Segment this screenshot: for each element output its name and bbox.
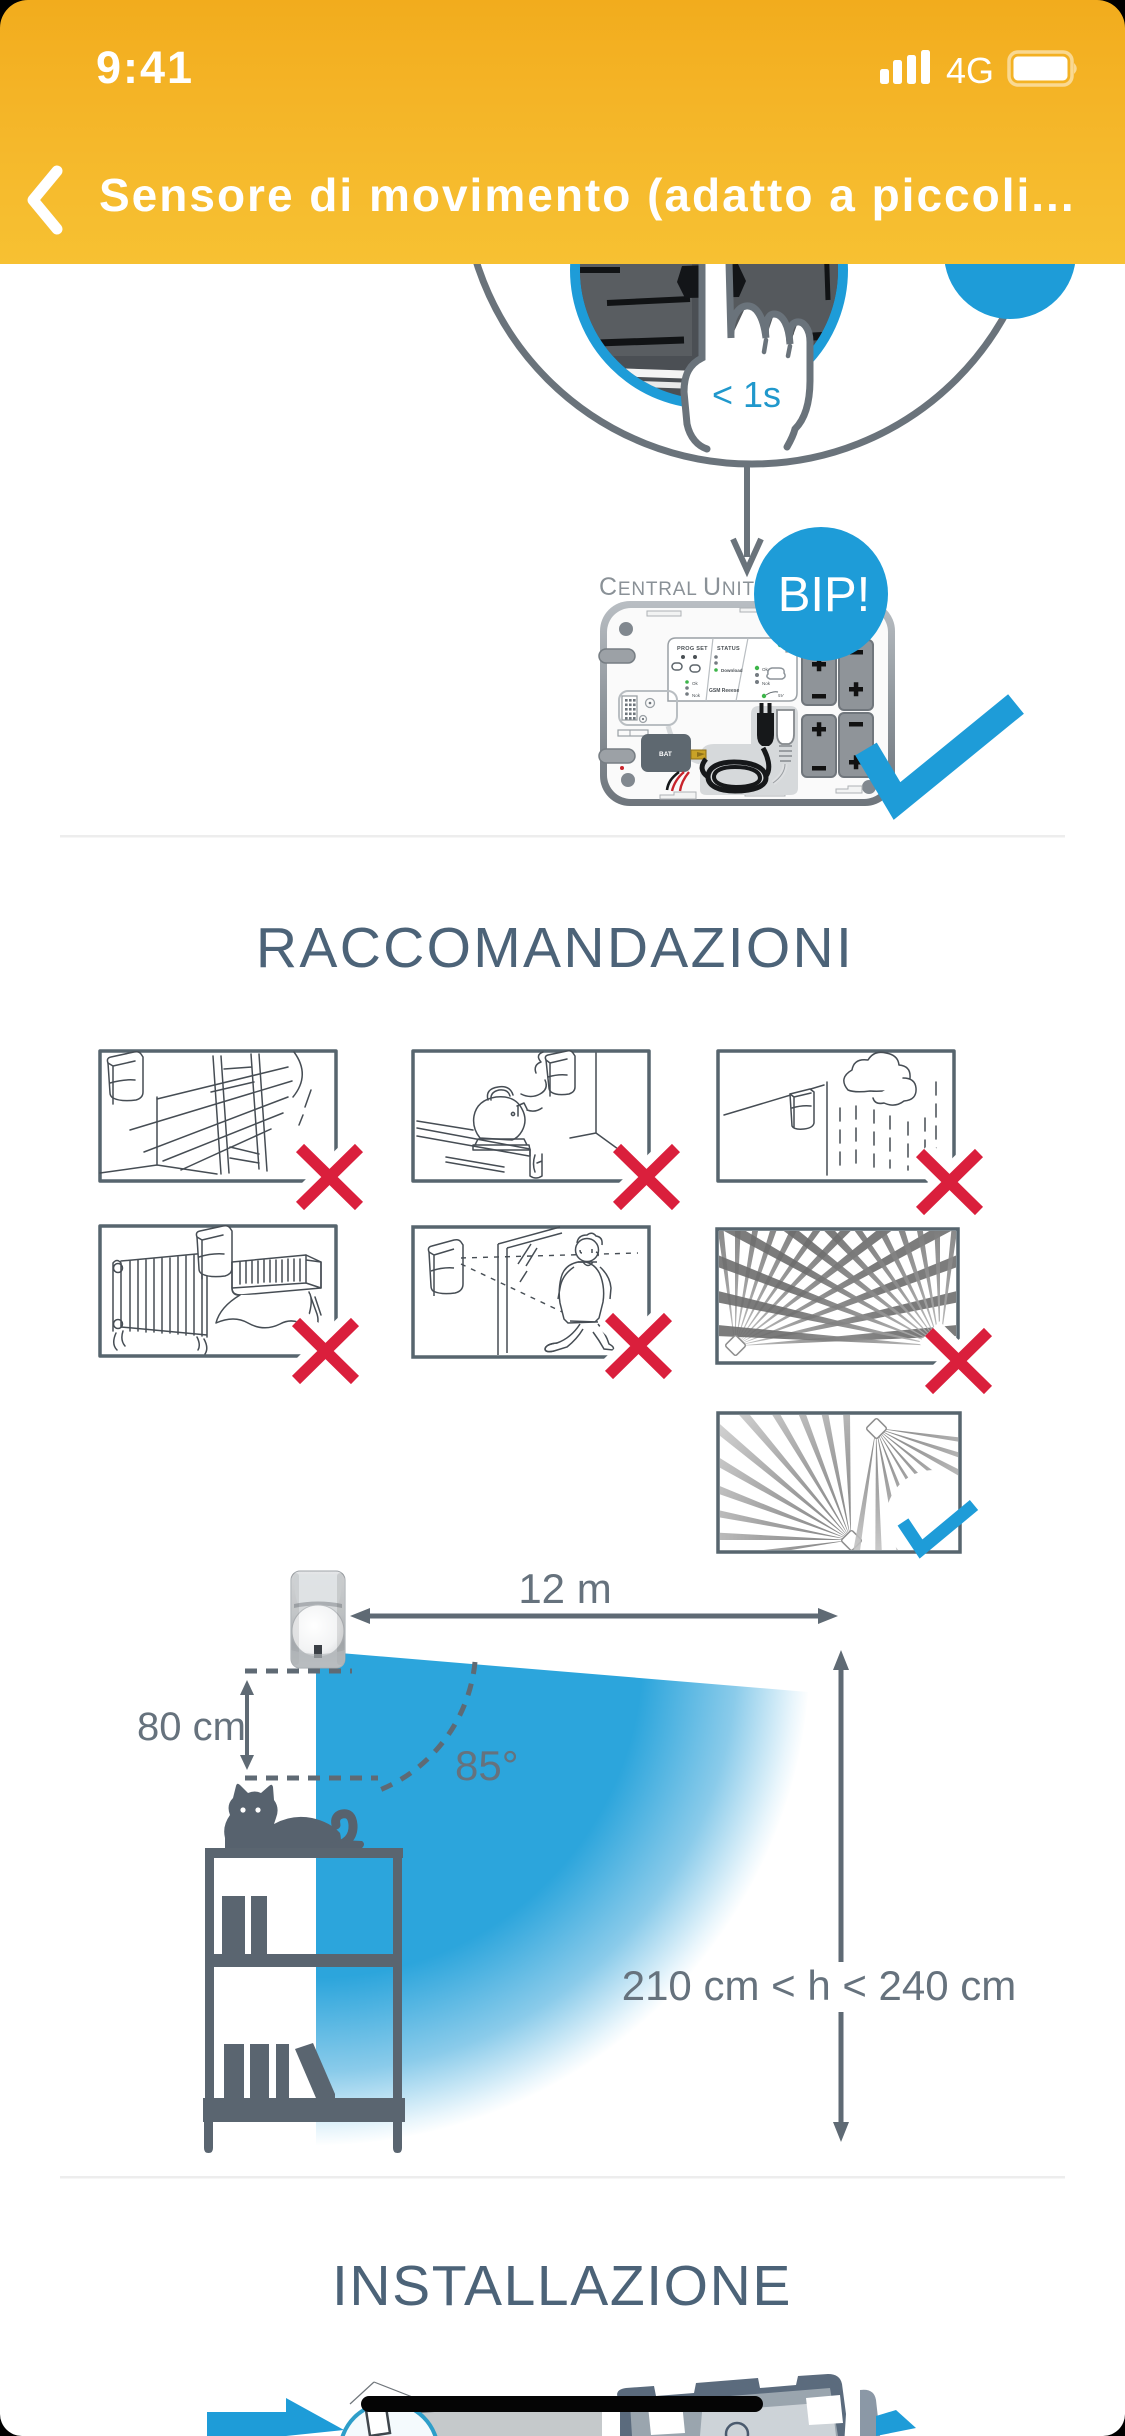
svg-text:Download: Download [721,668,743,673]
svg-text:INSTALLAZIONE: INSTALLAZIONE [332,2254,792,2318]
svg-text:STATUS: STATUS [717,646,740,652]
svg-text:Ok: Ok [692,681,699,686]
svg-text:GSM Reeese: GSM Reeese [709,688,740,694]
svg-text:85°: 85° [455,1742,519,1789]
svg-text:BIP!: BIP! [778,568,871,622]
svg-text:BAT: BAT [659,751,672,758]
svg-text:PROG SET: PROG SET [677,646,708,652]
svg-text:< 1s: < 1s [712,374,781,415]
svg-text:210 cm < h < 240 cm: 210 cm < h < 240 cm [622,1962,1017,2009]
svg-text:CENTRAL UNIT: CENTRAL UNIT [599,573,755,601]
svg-text:RACCOMANDAZIONI: RACCOMANDAZIONI [256,916,854,980]
svg-text:12 m: 12 m [518,1565,611,1612]
svg-text:80 cm: 80 cm [137,1705,246,1749]
svg-text:Nok: Nok [692,693,701,698]
svg-text:Nok: Nok [762,681,771,686]
